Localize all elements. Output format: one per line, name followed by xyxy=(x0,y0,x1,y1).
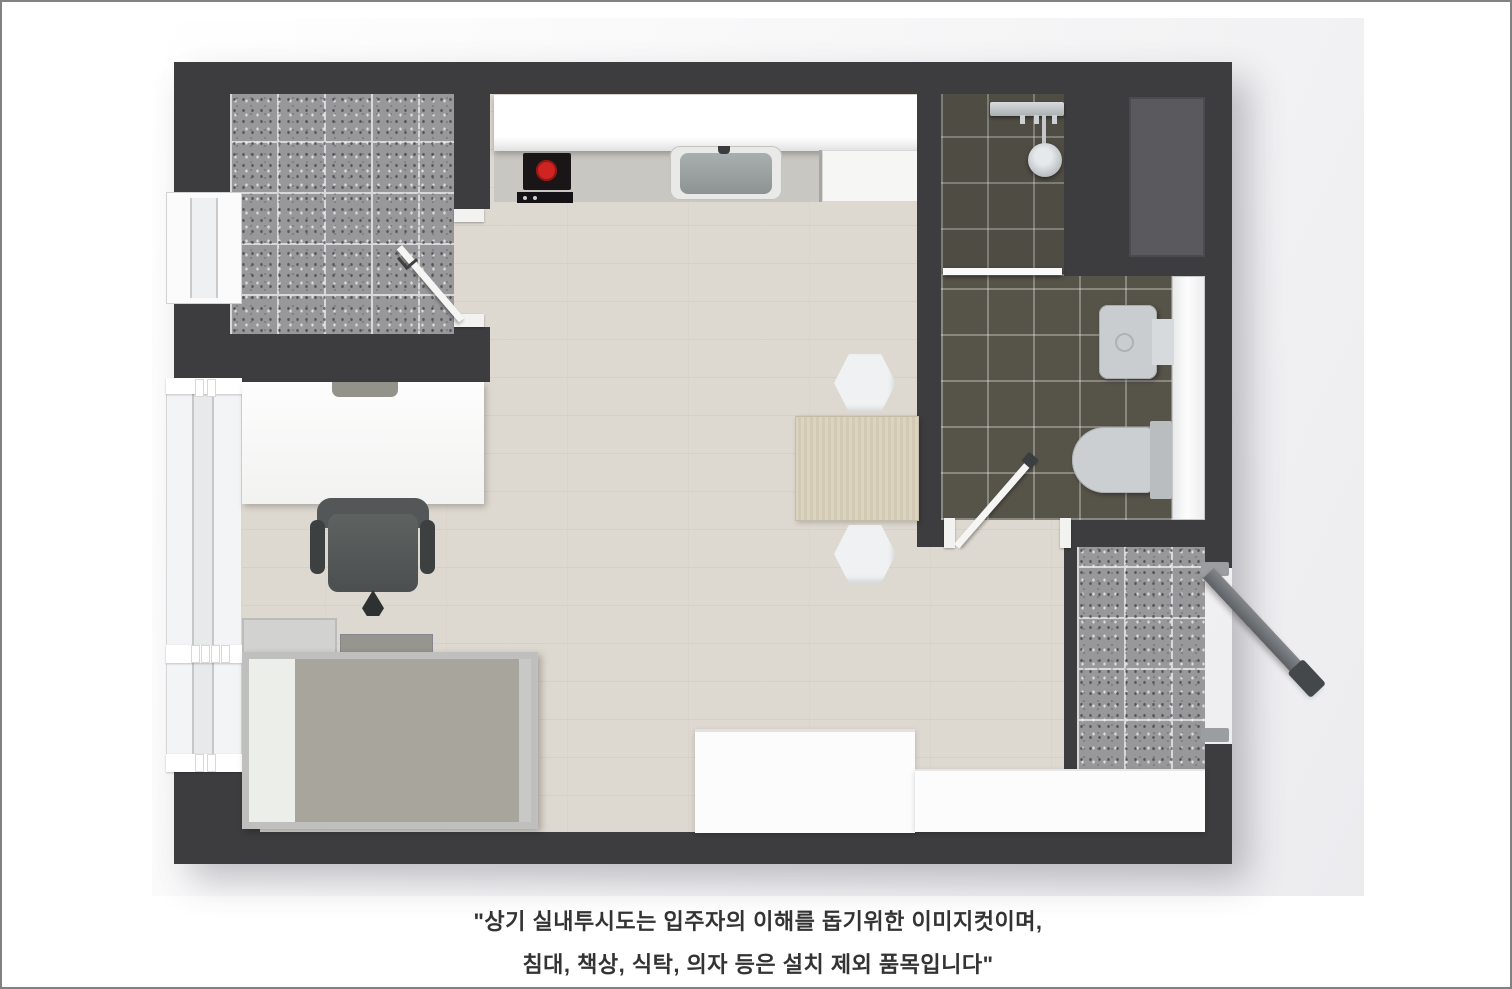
wall-bottom xyxy=(174,832,1232,864)
balcony-divider-wall xyxy=(1064,547,1077,772)
bed-pillow xyxy=(249,659,295,822)
bath-doorframe-post-right xyxy=(1060,518,1071,548)
cooktop-knob-2 xyxy=(533,196,537,200)
kitchen-upper-cabinet xyxy=(494,95,927,151)
window-mullion-top xyxy=(166,378,242,394)
window-latch-4 xyxy=(202,646,209,662)
storage-unit-b xyxy=(915,769,1205,832)
office-chair-arm-right xyxy=(420,520,435,574)
shower-tooth-2 xyxy=(1034,115,1039,124)
office-chair-seat xyxy=(328,514,418,592)
wall-bathroom-left xyxy=(917,94,941,520)
wall-vestibule-right-upper xyxy=(454,94,490,209)
wall-bathroom-bottom-right xyxy=(1067,520,1205,547)
balcony-floor xyxy=(1077,545,1205,772)
bathroom-tall-panel xyxy=(1172,276,1205,520)
shower-head xyxy=(1028,143,1062,177)
shower-tooth-3 xyxy=(1052,115,1057,124)
entrance-door-handle xyxy=(1287,659,1326,698)
screenshot-page: "상기 실내투시도는 입주자의 이해를 돕기위한 이미지컷이며, 침대, 책상,… xyxy=(0,0,1512,989)
entry-window-glass xyxy=(190,198,218,298)
cooktop-knob-1 xyxy=(523,196,527,200)
wall-vestibule-right-lower xyxy=(454,327,490,342)
floorplan-photo xyxy=(152,18,1364,896)
washbasin-drain xyxy=(1115,333,1134,352)
window-latch-6 xyxy=(222,646,229,662)
wall-left-upper xyxy=(174,62,230,194)
toilet-bowl xyxy=(1072,427,1154,493)
desk-monitor-mount xyxy=(332,382,398,397)
window-latch-7 xyxy=(196,755,203,771)
shower-tooth-1 xyxy=(1020,115,1025,124)
bed-foot-rail xyxy=(519,659,531,822)
wall-right-lower xyxy=(1205,744,1232,864)
storage-unit-a xyxy=(695,729,915,833)
caption-line-2: 침대, 책상, 식탁, 의자 등은 설치 제외 품목입니다" xyxy=(2,943,1512,986)
kitchen-sink-basin xyxy=(680,153,772,194)
window-latch-2 xyxy=(208,380,215,396)
shower-partition xyxy=(943,268,1062,275)
caption-line-1: "상기 실내투시도는 입주자의 이해를 돕기위한 이미지컷이며, xyxy=(2,900,1512,943)
main-window-glass xyxy=(192,386,214,764)
caption: "상기 실내투시도는 입주자의 이해를 돕기위한 이미지컷이며, 침대, 책상,… xyxy=(2,900,1512,986)
entry-doorframe-post-top xyxy=(454,209,484,222)
wall-right-upper xyxy=(1205,62,1232,568)
headboard-shelf-1 xyxy=(242,618,337,654)
desk xyxy=(242,382,484,504)
wall-vestibule-bottom xyxy=(174,334,490,382)
sink-faucet xyxy=(718,146,730,154)
plan-canvas xyxy=(2,2,1512,989)
cooktop-burner xyxy=(536,160,557,181)
single-bed xyxy=(242,652,538,829)
window-mullion-bottom xyxy=(166,754,242,772)
window-latch-5 xyxy=(212,646,219,662)
shower-mixer-bar xyxy=(990,102,1064,116)
window-latch-3 xyxy=(192,646,199,662)
entry-window xyxy=(166,192,242,304)
entrance-hinge-bottom xyxy=(1201,728,1229,742)
entry-vestibule-floor xyxy=(230,94,454,347)
wall-top xyxy=(174,62,1232,94)
shower-hose xyxy=(1042,115,1046,146)
utility-box xyxy=(1129,97,1205,257)
main-window xyxy=(166,378,242,772)
window-latch-8 xyxy=(208,755,215,771)
dining-table xyxy=(795,416,919,521)
toilet-tank xyxy=(1150,421,1172,499)
window-latch-1 xyxy=(196,380,203,396)
washbasin-faucet xyxy=(1152,319,1174,365)
office-chair-arm-left xyxy=(310,520,325,574)
kitchen-appliance xyxy=(822,150,928,202)
